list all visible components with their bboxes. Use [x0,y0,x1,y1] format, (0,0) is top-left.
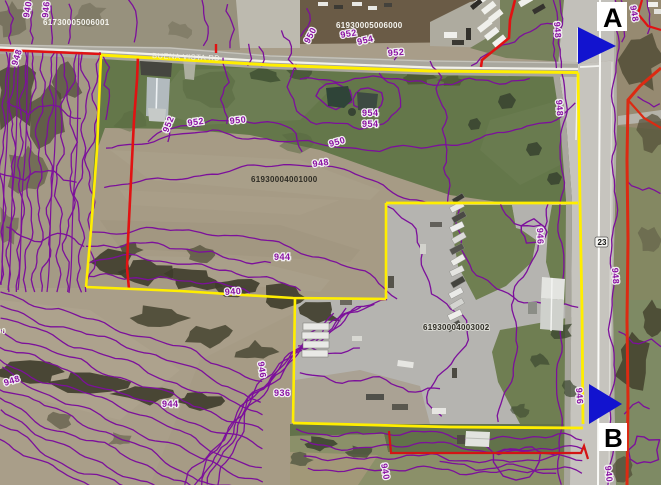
svg-text:950: 950 [229,114,246,126]
svg-text:948: 948 [552,21,563,38]
svg-text:948: 948 [610,267,621,284]
svg-text:954: 954 [362,108,379,118]
svg-text:61930004003002: 61930004003002 [423,323,490,332]
svg-text:946: 946 [40,1,52,18]
svg-text:944: 944 [162,399,179,409]
svg-text:A: A [603,3,623,33]
svg-text:936: 936 [274,388,291,398]
svg-text:944: 944 [274,252,291,262]
svg-text:61730005006001: 61730005006001 [43,18,110,27]
svg-text:940: 940 [224,286,241,297]
svg-text:946: 946 [574,387,585,404]
svg-text:954: 954 [362,119,379,129]
svg-text:61930004001000: 61930004001000 [251,175,318,184]
svg-text:23: 23 [598,238,607,247]
svg-text:000: 000 [0,327,6,336]
svg-text:B: B [604,423,623,453]
svg-text:940: 940 [603,465,615,482]
svg-text:952: 952 [387,47,404,58]
svg-text:948: 948 [554,99,565,116]
svg-text:946: 946 [535,228,546,245]
